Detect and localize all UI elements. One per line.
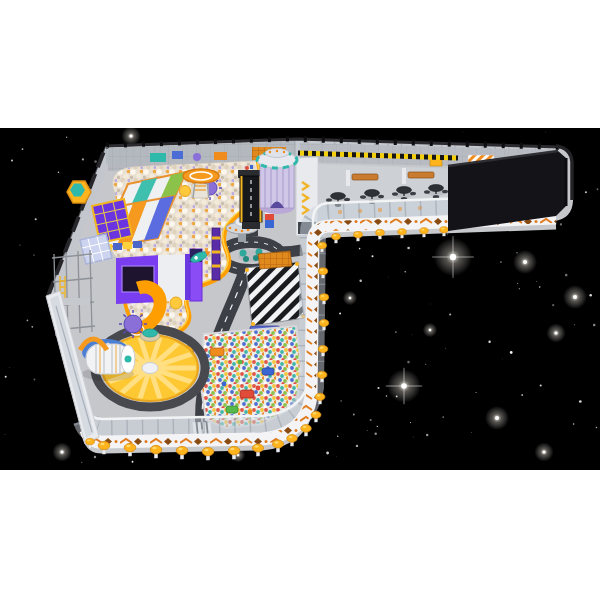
star: [22, 148, 24, 150]
bright-star-core: [349, 297, 351, 299]
cafe-chair: [442, 190, 448, 194]
star: [593, 324, 595, 326]
cafe-chair: [344, 198, 350, 202]
soft-block: [172, 151, 183, 159]
star: [66, 137, 67, 138]
soft-mat-grid: [80, 234, 112, 264]
star: [370, 419, 372, 421]
totem-pole: [212, 228, 220, 280]
star: [463, 132, 464, 133]
star: [35, 218, 37, 220]
star: [395, 331, 397, 333]
bright-star-core: [60, 450, 63, 453]
orange-climb-lattice: [258, 251, 292, 269]
star: [386, 395, 388, 397]
star: [81, 462, 82, 463]
star: [412, 334, 413, 335]
star: [573, 423, 575, 425]
star: [488, 340, 490, 342]
bright-star-core: [542, 450, 545, 453]
star: [442, 416, 444, 418]
star: [336, 456, 337, 457]
soft-roller-capsule: [82, 339, 135, 381]
star: [5, 376, 7, 378]
star: [356, 445, 358, 447]
star: [407, 361, 410, 364]
star: [540, 384, 542, 386]
star: [574, 324, 575, 325]
star: [426, 434, 428, 436]
star: [519, 288, 520, 289]
star: [447, 233, 448, 234]
star: [545, 132, 546, 133]
star: [502, 359, 503, 360]
screenshot-canvas: [0, 0, 600, 600]
star: [5, 434, 6, 435]
star: [353, 414, 355, 416]
star: [517, 283, 518, 284]
space-tower: [257, 149, 297, 215]
star: [589, 294, 592, 297]
star: [536, 281, 537, 282]
star: [19, 245, 20, 246]
star: [377, 426, 378, 427]
star: [560, 223, 562, 225]
star: [359, 248, 361, 250]
cafe-chair: [378, 195, 384, 199]
soft-block-orange: [214, 152, 227, 160]
bright-star-core: [523, 260, 527, 264]
star: [597, 188, 599, 190]
star: [58, 171, 59, 172]
star: [94, 160, 97, 163]
star: [11, 159, 13, 161]
star: [372, 255, 374, 257]
star: [476, 392, 477, 393]
bright-star-core: [129, 134, 132, 137]
star: [33, 254, 34, 255]
cafe-table: [429, 185, 444, 192]
star: [585, 191, 587, 193]
scene-svg: [0, 0, 600, 600]
star: [339, 313, 341, 315]
star: [596, 427, 598, 429]
star: [579, 400, 582, 403]
bright-star-core: [495, 416, 499, 420]
star: [430, 304, 431, 305]
star: [521, 394, 523, 396]
star: [359, 280, 361, 282]
cafe-chair: [410, 192, 416, 196]
star: [340, 400, 341, 401]
star: [10, 367, 11, 368]
bright-star-core: [429, 329, 431, 331]
star: [500, 261, 502, 263]
star: [425, 364, 426, 365]
cafe-chair: [392, 192, 398, 196]
star: [510, 351, 513, 354]
star: [565, 274, 568, 277]
star: [449, 313, 451, 315]
star: [388, 277, 389, 278]
hexagon-trampoline: [67, 181, 91, 203]
star: [27, 320, 29, 322]
star: [374, 433, 377, 436]
star: [413, 437, 414, 438]
star: [445, 348, 446, 349]
cafe-table: [331, 193, 346, 200]
star: [539, 286, 540, 287]
cafe-chair: [424, 190, 430, 194]
star: [337, 435, 339, 437]
star: [94, 456, 96, 458]
star: [377, 387, 379, 389]
cafe-table: [397, 187, 412, 194]
star: [552, 304, 554, 306]
star: [367, 430, 368, 431]
star: [82, 158, 84, 160]
bright-star-core: [554, 331, 557, 334]
star: [407, 247, 410, 250]
star: [132, 461, 134, 463]
bright-star-core: [573, 295, 577, 299]
mini-slide: [150, 153, 166, 162]
cafe-chair: [326, 198, 332, 202]
star: [410, 422, 411, 423]
star: [404, 271, 406, 273]
star: [31, 326, 33, 328]
star: [326, 452, 329, 455]
soft-dome: [193, 153, 201, 161]
star: [34, 378, 36, 380]
cafe-chair: [360, 195, 366, 199]
star: [471, 432, 472, 433]
cafe-table: [365, 190, 380, 197]
